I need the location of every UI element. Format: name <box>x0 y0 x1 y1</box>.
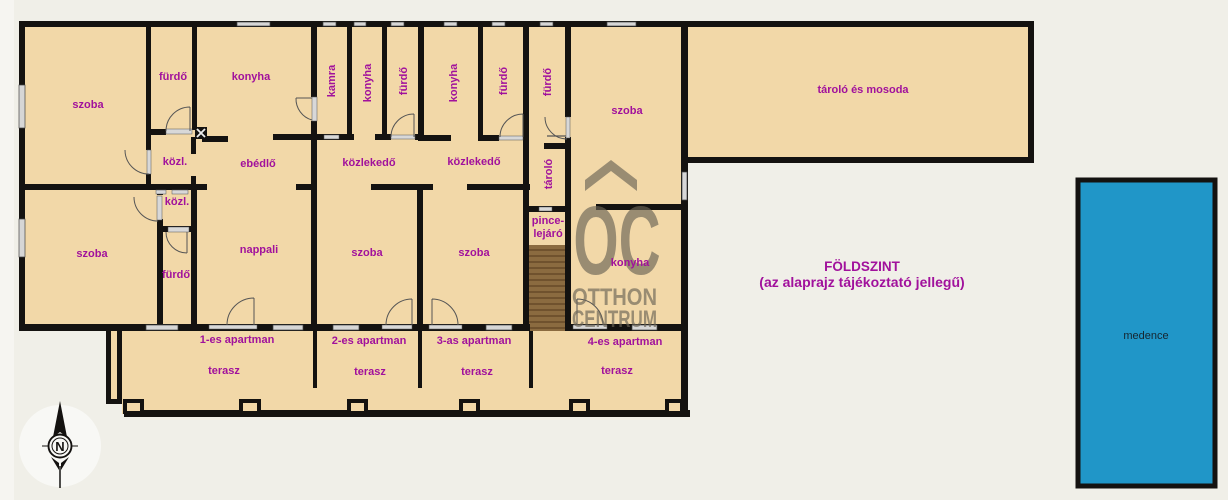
svg-text:4-es apartman: 4-es apartman <box>588 336 663 348</box>
svg-text:konyha: konyha <box>448 63 460 102</box>
svg-text:közlekedő: közlekedő <box>342 157 395 169</box>
svg-text:kamra: kamra <box>326 64 338 97</box>
svg-text:szoba: szoba <box>76 248 108 260</box>
svg-text:fürdő: fürdő <box>542 68 554 96</box>
svg-text:pince-: pince- <box>532 215 565 227</box>
svg-text:konyha: konyha <box>611 257 650 269</box>
svg-text:N: N <box>55 439 64 454</box>
svg-text:CENTRUM: CENTRUM <box>572 306 657 333</box>
svg-text:közlekedő: közlekedő <box>447 156 500 168</box>
svg-text:közl.: közl. <box>163 156 187 168</box>
svg-text:ebédlő: ebédlő <box>240 158 276 170</box>
svg-text:medence: medence <box>1123 330 1168 342</box>
svg-text:közl.: közl. <box>165 196 189 208</box>
svg-text:tároló és mosoda: tároló és mosoda <box>817 84 909 96</box>
svg-text:konyha: konyha <box>362 63 374 102</box>
svg-text:terasz: terasz <box>601 365 633 377</box>
svg-text:szoba: szoba <box>351 247 383 259</box>
svg-text:szoba: szoba <box>458 247 490 259</box>
svg-text:fürdő: fürdő <box>162 269 190 281</box>
svg-text:FÖLDSZINT: FÖLDSZINT <box>824 259 900 274</box>
svg-text:fürdő: fürdő <box>398 67 410 95</box>
svg-text:OC: OC <box>573 187 660 295</box>
svg-text:terasz: terasz <box>354 366 386 378</box>
svg-text:2-es apartman: 2-es apartman <box>332 335 407 347</box>
svg-text:szoba: szoba <box>72 99 104 111</box>
svg-text:fürdő: fürdő <box>498 67 510 95</box>
svg-text:terasz: terasz <box>208 365 240 377</box>
svg-text:(az alaprajz tájékoztató jelle: (az alaprajz tájékoztató jellegű) <box>759 274 964 290</box>
svg-text:terasz: terasz <box>461 366 493 378</box>
svg-text:3-as apartman: 3-as apartman <box>437 335 512 347</box>
svg-text:lejáró: lejáró <box>533 228 563 240</box>
svg-text:konyha: konyha <box>232 71 271 83</box>
svg-text:fürdő: fürdő <box>159 71 187 83</box>
svg-text:szoba: szoba <box>611 105 643 117</box>
svg-text:1-es apartman: 1-es apartman <box>200 334 275 346</box>
svg-text:tároló: tároló <box>543 158 555 189</box>
svg-text:nappali: nappali <box>240 244 279 256</box>
